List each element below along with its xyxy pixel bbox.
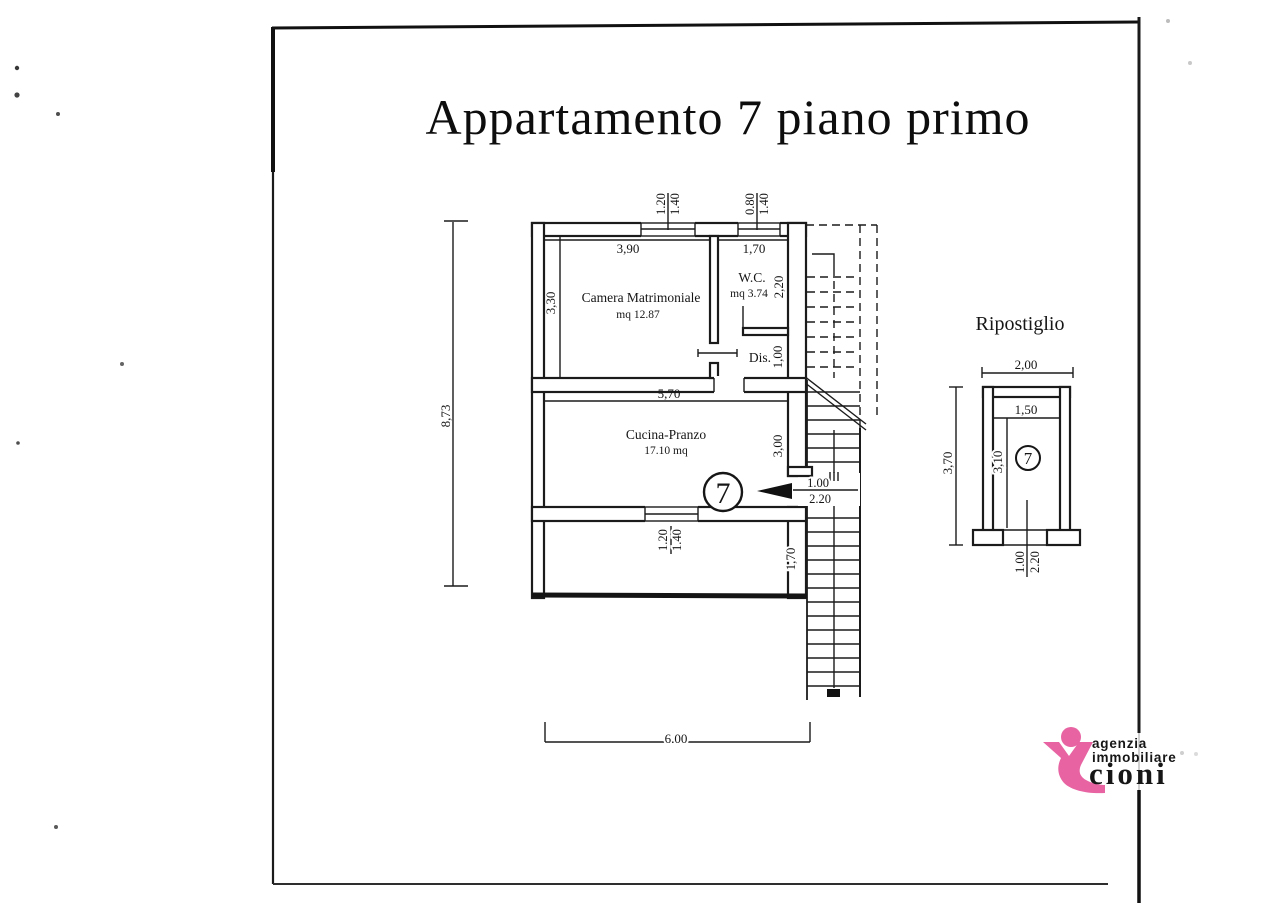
page-title: Appartamento 7 piano primo [425,89,1030,145]
staircase [804,225,877,700]
staircase-upper-dashed [806,225,877,428]
room-area-wc: mq 3.74 [730,288,768,300]
entrance-door-width: 1.00 [807,476,829,490]
svg-text:3,10: 3,10 [990,451,1005,474]
annex-dim-outer-height: 3,70 [940,387,963,545]
agency-logo: agenzia immobiliare cioni [1043,727,1198,793]
dim-total-height: 8,73 [438,221,468,586]
svg-text:1.40: 1.40 [670,529,684,551]
wall-wc-dis [743,328,788,335]
entrance-arrow-icon [757,483,792,499]
room-area-cucina: 17.10 mq [644,445,688,457]
logo-agency-name: cioni [1089,756,1168,791]
dim-wc-height: 2,20 [771,276,786,299]
svg-text:3,90: 3,90 [617,241,640,256]
annex-dim-outer-width: 2,00 [982,357,1073,378]
wall-notch [788,467,812,476]
wall-camera-wc [710,236,718,343]
entrance-door: 1.00 2.20 [757,467,860,506]
room-label-dis: Dis. [749,350,771,365]
svg-text:1,70: 1,70 [743,241,766,256]
annex-foot-right [1047,530,1080,545]
unit-number-badge: 7 [704,473,742,511]
annex-title: Ripostiglio [976,313,1065,335]
scan-smudge [1180,751,1184,755]
dim-dis-height: 1,00 [770,346,785,369]
svg-text:1,50: 1,50 [1015,402,1038,417]
stair-break-line [804,376,866,430]
dim-cucina-height: 3,00 [770,435,785,458]
room-label-wc: W.C. [738,270,765,285]
svg-text:7: 7 [1024,449,1033,468]
svg-text:1.00: 1.00 [1013,551,1027,573]
svg-text:2.20: 2.20 [1028,551,1042,573]
svg-text:3,30: 3,30 [543,292,558,315]
dim-lower-height: 1,70 [783,548,798,571]
dim-total-width: 6.00 [545,722,810,746]
annex-ripostiglio: Ripostiglio 2,00 1,50 3,70 [940,313,1080,577]
annex-unit-number-badge: 7 [1016,446,1040,470]
dim-window-3: 1.20 1.40 [656,526,684,554]
scanned-floorplan-page: Appartamento 7 piano primo [0,0,1280,903]
page-frame [271,22,1138,884]
svg-text:8,73: 8,73 [438,405,453,428]
stair-end-mark [827,689,840,697]
wall-bottom [532,595,807,596]
dim-wc-width: 1,70 [718,240,788,256]
wall-camera-dis [710,363,718,378]
svg-text:5,70: 5,70 [658,386,681,401]
svg-text:0.80: 0.80 [743,193,757,215]
svg-text:1.40: 1.40 [668,193,682,215]
svg-text:2,00: 2,00 [1015,357,1038,372]
wall-right-upper [788,223,806,476]
svg-text:3,70: 3,70 [940,452,955,475]
entrance-door-height: 2.20 [809,492,831,506]
svg-text:1.40: 1.40 [757,193,771,215]
floorplan-drawing: Appartamento 7 piano primo [0,0,1280,903]
room-label-cucina: Cucina-Pranzo [626,427,706,442]
window-bottom [645,505,698,523]
stair-handrail-hook [812,254,834,268]
dim-camera-width: 3,90 [544,240,710,256]
wall-left [532,223,544,598]
svg-text:1.20: 1.20 [654,193,668,215]
scan-smudge [1194,752,1198,756]
svg-text:6.00: 6.00 [665,731,688,746]
room-label-camera: Camera Matrimoniale [582,290,701,305]
svg-text:7: 7 [716,477,731,510]
staircase-lower-solid [807,380,860,700]
annex-dim-inner-width: 1,50 [993,402,1060,418]
annex-door-dim: 1.00 2.20 [1013,500,1042,577]
room-area-camera: mq 12.87 [616,309,660,321]
window-top-2 [738,221,780,238]
logo-text-line1: agenzia [1092,736,1147,751]
annex-foot-left [973,530,1003,545]
dim-camera-height: 3,30 [543,236,560,378]
svg-text:1.20: 1.20 [656,529,670,551]
door-opening-dis-cucina [714,376,744,394]
